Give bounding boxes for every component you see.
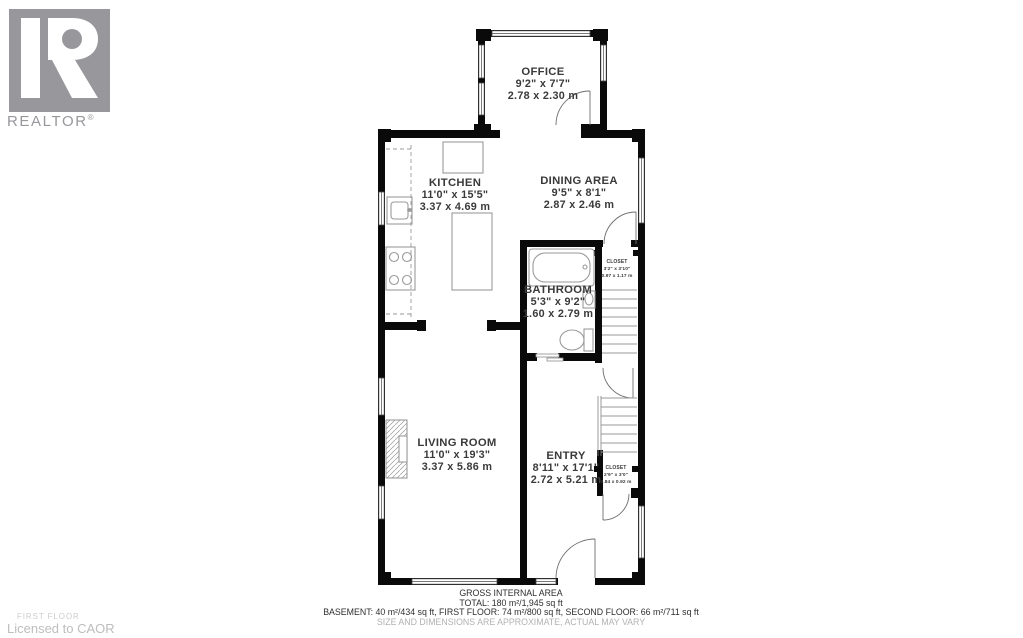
licensed-to-label: Licensed to CAOR [7, 621, 115, 636]
svg-text:2'9" x 3'0": 2'9" x 3'0" [604, 472, 628, 478]
room-label-closet-upper: CLOSET 3'2" x 3'10" 0.97 x 1.17 m [602, 259, 633, 279]
svg-text:2.72 x 5.21 m: 2.72 x 5.21 m [531, 474, 602, 486]
svg-text:OFFICE: OFFICE [521, 66, 564, 78]
kitchen-island [452, 213, 492, 290]
stairs-up [598, 396, 637, 456]
room-label-kitchen: KITCHEN 11'0" x 15'5" 3.37 x 4.69 m [420, 177, 491, 213]
walls [378, 29, 645, 585]
svg-text:3.37 x 5.86 m: 3.37 x 5.86 m [422, 461, 493, 473]
svg-text:ENTRY: ENTRY [546, 450, 586, 462]
fireplace-icon [386, 420, 407, 478]
svg-text:0.84 x 0.92 m: 0.84 x 0.92 m [601, 479, 632, 485]
svg-text:2.78 x 2.30 m: 2.78 x 2.30 m [508, 90, 579, 102]
bathtub-icon [529, 249, 594, 286]
svg-text:3.37 x 4.69 m: 3.37 x 4.69 m [420, 201, 491, 213]
upper-cabinets-dashed [386, 145, 411, 318]
svg-text:CLOSET: CLOSET [606, 465, 627, 471]
svg-text:3'2" x 3'10": 3'2" x 3'10" [604, 266, 631, 272]
svg-text:1.60 x 2.79 m: 1.60 x 2.79 m [523, 308, 594, 320]
room-label-dining: DINING AREA 9'5" x 8'1" 2.87 x 2.46 m [540, 175, 618, 211]
room-label-entry: ENTRY 8'11" x 17'1" 2.72 x 5.21 m [531, 450, 602, 486]
stairs-down [602, 290, 637, 353]
svg-text:8'11" x 17'1": 8'11" x 17'1" [533, 462, 600, 474]
svg-text:CLOSET: CLOSET [607, 259, 628, 265]
floor-name-label: FIRST FLOOR [17, 612, 80, 621]
room-label-office: OFFICE 9'2" x 7'7" 2.78 x 2.30 m [508, 66, 579, 102]
toilet-icon [560, 329, 593, 351]
room-label-bathroom: BATHROOM 5'3" x 9'2" 1.60 x 2.79 m [523, 284, 594, 320]
svg-text:9'2" x 7'7": 9'2" x 7'7" [516, 78, 571, 90]
fridge-icon [443, 142, 483, 173]
room-label-closet-lower: CLOSET 2'9" x 3'0" 0.84 x 0.92 m [601, 465, 632, 485]
svg-text:LIVING ROOM: LIVING ROOM [417, 437, 496, 449]
svg-text:9'5" x 8'1": 9'5" x 8'1" [552, 187, 607, 199]
room-label-living: LIVING ROOM 11'0" x 19'3" 3.37 x 5.86 m [417, 437, 496, 473]
svg-text:DINING AREA: DINING AREA [540, 175, 618, 187]
stair-railing [598, 396, 601, 456]
svg-text:KITCHEN: KITCHEN [429, 177, 481, 189]
svg-text:BATHROOM: BATHROOM [524, 284, 592, 296]
svg-text:0.97 x 1.17 m: 0.97 x 1.17 m [602, 273, 633, 279]
floor-plan: OFFICE 9'2" x 7'7" 2.78 x 2.30 m KITCHEN… [0, 0, 1023, 638]
area-summary: GROSS INTERNAL AREA TOTAL: 180 m²/1,945 … [161, 589, 861, 628]
page: REALTOR® [0, 0, 1023, 638]
svg-text:11'0" x 19'3": 11'0" x 19'3" [424, 449, 491, 461]
svg-text:2.87 x 2.46 m: 2.87 x 2.46 m [544, 199, 615, 211]
disclaimer: SIZE AND DIMENSIONS ARE APPROXIMATE, ACT… [161, 618, 861, 628]
svg-text:5'3" x 9'2": 5'3" x 9'2" [531, 296, 586, 308]
kitchen-sink-icon [387, 197, 412, 224]
svg-text:11'0" x 15'5": 11'0" x 15'5" [422, 189, 489, 201]
